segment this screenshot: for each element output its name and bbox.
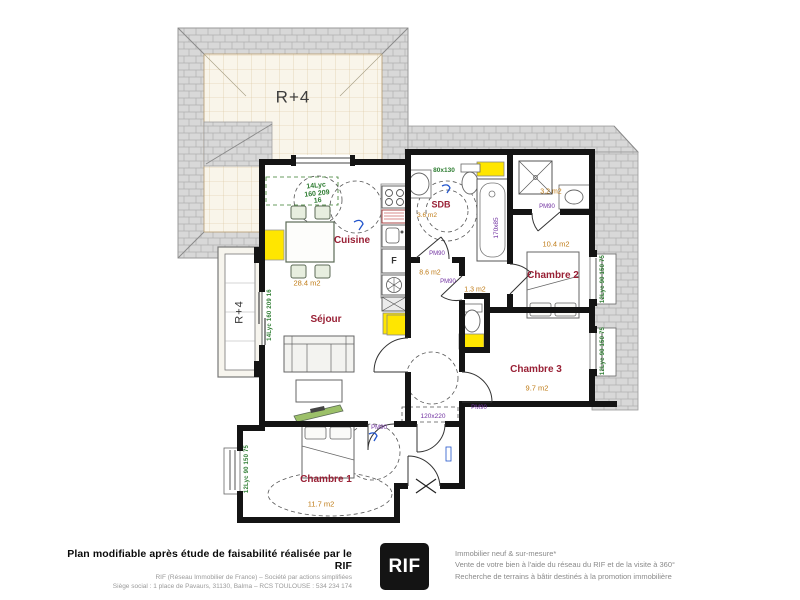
footer: Plan modifiable après étude de faisabili…	[0, 540, 800, 600]
footer-service-line-2: Vente de votre bien à l'aide du réseau d…	[455, 559, 675, 570]
door-size-tag: PM90	[539, 204, 555, 210]
window-label-kitchen: 14Lyc 160 209 16	[303, 181, 331, 207]
room-label-chambre1: Chambre 1	[300, 475, 352, 485]
door-size-tag: PM90	[371, 425, 387, 431]
room-label-sejour: Séjour	[310, 315, 341, 325]
room-label-chambre3: Chambre 3	[510, 365, 562, 375]
fridge-label: F	[391, 257, 397, 266]
roof-terrace-label: R+4	[276, 89, 311, 106]
floor-plan-drawing	[0, 0, 800, 540]
window-label-chambre1: 12Lyc 90 150 75	[244, 445, 250, 493]
door-size-tag: PM90	[471, 405, 487, 411]
footer-right-block: Immobilier neuf & sur-mesure* Vente de v…	[455, 548, 675, 582]
area-label-salle-eau: 3.2 m2	[540, 189, 561, 196]
room-label-chambre2: Chambre 2	[527, 271, 579, 281]
dim-label-bathtub: 170x85	[494, 217, 501, 238]
footer-company-line: RIF (Réseau Immobilier de France) – Soci…	[58, 574, 352, 581]
footer-service-line-1: Immobilier neuf & sur-mesure*	[455, 548, 675, 559]
room-label-sdb: SDB	[431, 201, 450, 210]
area-label-sejour: 28.4 m2	[293, 279, 320, 287]
window-label-kitchen-line3: 16	[314, 197, 322, 205]
area-label-chambre1: 11.7 m2	[308, 500, 335, 508]
footer-address-line: Siège social : 1 place de Pavaurs, 31130…	[58, 583, 352, 590]
dim-label-closet: 120x220	[421, 414, 446, 421]
floor-plan: R+4 R+4 Cuisine Séjour 28.4 m2 Chambre 1…	[0, 0, 800, 540]
door-size-tag: PM90	[429, 251, 445, 257]
area-label-wc: 1.3 m2	[464, 287, 485, 294]
window-label-chambre2: 12Lyc 90 150 75	[600, 255, 606, 303]
footer-title: Plan modifiable après étude de faisabili…	[58, 548, 352, 572]
bedroom1-furniture	[302, 424, 354, 478]
footer-service-line-3: Recherche de terrains à bâtir destinés à…	[455, 571, 675, 582]
area-label-sdb: 3.6 m2	[417, 213, 437, 220]
window-label-balcony: 14Lyc 160 209 16	[267, 289, 273, 341]
room-label-cuisine: Cuisine	[334, 236, 370, 246]
area-label-degagement: 8.6 m2	[419, 270, 440, 277]
area-label-chambre2: 10.4 m2	[542, 240, 569, 248]
rif-logo-text: RIF	[388, 556, 420, 578]
door-size-tag: PM90	[440, 279, 456, 285]
balcony-label: R+4	[235, 300, 246, 324]
window-label-chambre3: 12Lyc 90 150 75	[600, 327, 606, 375]
floor-plan-page: R+4 R+4 Cuisine Séjour 28.4 m2 Chambre 1…	[0, 0, 800, 600]
area-label-chambre3: 9.7 m2	[526, 384, 549, 392]
dim-label-sanitaire: 80x130	[433, 168, 455, 175]
rif-logo: RIF	[380, 543, 429, 590]
footer-left-block: Plan modifiable après étude de faisabili…	[58, 548, 352, 590]
